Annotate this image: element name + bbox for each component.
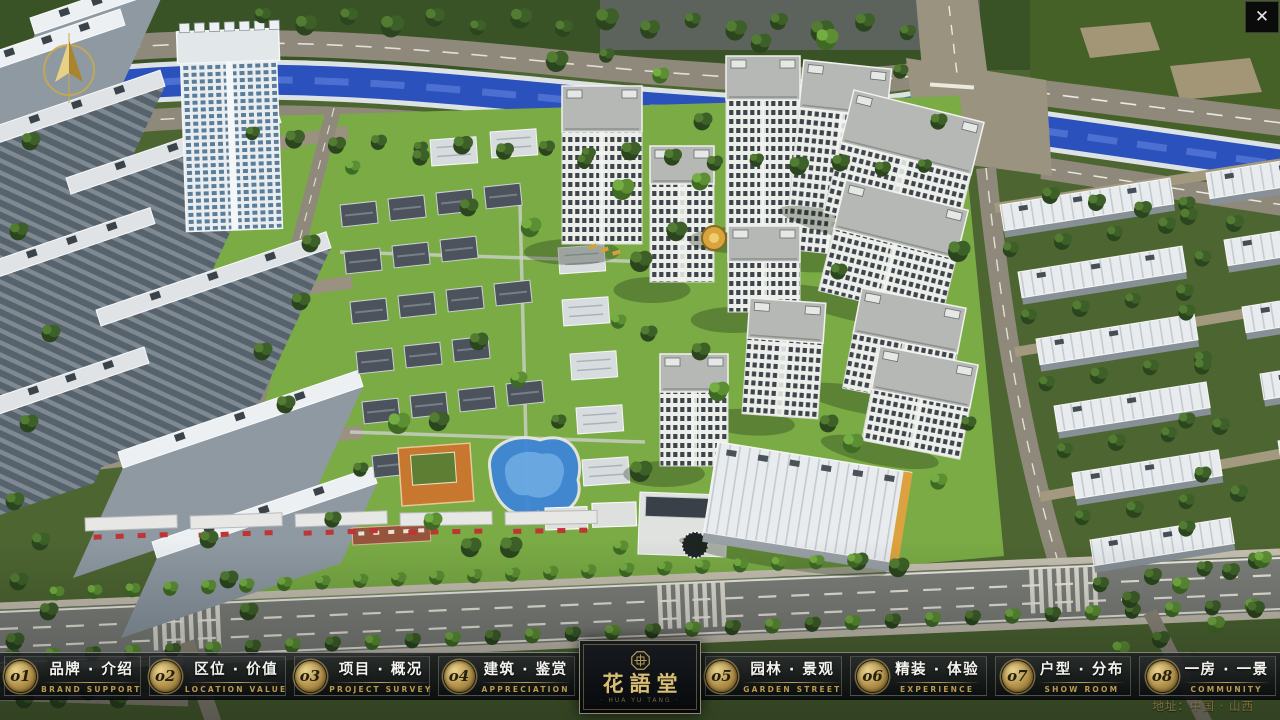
menu-item-interior-experience[interactable]: o6 精装 · 体验EXPERIENCE <box>850 656 987 696</box>
seal-emblem-icon <box>630 650 651 671</box>
presentation-stage: ✕ o1 品牌 · 介绍BRAND SUPPORT o2 区位 · 价值LOCA… <box>0 0 1280 720</box>
menu-number-badge: o7 <box>1002 661 1033 692</box>
menu-number-badge: o3 <box>295 661 326 692</box>
menu-label-en: LOCATION VALUE <box>185 685 287 694</box>
menu-label-en: APPRECIATION <box>482 685 570 694</box>
menu-label-en: EXPERIENCE <box>900 685 974 694</box>
compass-icon <box>38 30 100 110</box>
menu-item-brand-intro[interactable]: o1 品牌 · 介绍BRAND SUPPORT <box>4 656 141 696</box>
bottom-menu-bar: o1 品牌 · 介绍BRAND SUPPORT o2 区位 · 价值LOCATI… <box>0 652 1280 700</box>
menu-number-badge: o6 <box>857 661 888 692</box>
menu-divider <box>188 682 285 683</box>
menu-item-architecture[interactable]: o4 建筑 · 鉴赏APPRECIATION <box>438 656 575 696</box>
menu-label-cn: 项目 · 概况 <box>339 658 423 679</box>
close-button[interactable]: ✕ <box>1245 1 1279 33</box>
menu-item-floorplan[interactable]: o7 户型 · 分布SHOW ROOM <box>995 656 1132 696</box>
menu-number-badge: o4 <box>444 661 475 692</box>
menu-divider <box>895 682 979 683</box>
address-text: 地址：中国 · 山西 <box>1153 698 1254 714</box>
menu-number: o4 <box>449 669 469 684</box>
menu-label-cn: 精装 · 体验 <box>895 658 979 679</box>
menu-label-cn: 区位 · 价值 <box>194 658 278 679</box>
menu-item-project-overview[interactable]: o3 项目 · 概况PROJECT SURVEY <box>294 656 431 696</box>
menu-label-en: BRAND SUPPORT <box>41 685 141 694</box>
menu-divider <box>744 682 841 683</box>
menu-label-cn: 品牌 · 介绍 <box>49 658 133 679</box>
menu-label-en: SHOW ROOM <box>1045 685 1120 694</box>
logo-subtitle: · HUA YU TANG · <box>601 697 680 704</box>
menu-item-garden-landscape[interactable]: o5 园林 · 景观GARDEN STREET <box>705 656 842 696</box>
menu-label-cn: 园林 · 景观 <box>750 658 834 679</box>
menu-label-en: GARDEN STREET <box>743 685 841 694</box>
logo-plate[interactable]: 花語堂 · HUA YU TANG · <box>579 640 701 714</box>
menu-label-cn: 建筑 · 鉴赏 <box>484 658 568 679</box>
menu-number-badge: o8 <box>1147 661 1178 692</box>
menu-item-one-room-one-view[interactable]: o8 一房 · 一景COMMUNITY <box>1139 656 1276 696</box>
menu-number: o5 <box>711 669 731 684</box>
menu-number: o6 <box>862 669 882 684</box>
menu-number: o1 <box>10 669 30 684</box>
menu-number: o8 <box>1152 669 1172 684</box>
menu-divider <box>1185 682 1269 683</box>
menu-label-en: COMMUNITY <box>1190 685 1262 694</box>
menu-number-badge: o2 <box>150 661 181 692</box>
menu-divider <box>1040 682 1124 683</box>
menu-label-en: PROJECT SURVEY <box>329 685 432 694</box>
menu-number: o3 <box>300 669 320 684</box>
menu-divider <box>333 682 430 683</box>
menu-item-location-value[interactable]: o2 区位 · 价值LOCATION VALUE <box>149 656 286 696</box>
menu-label-cn: 一房 · 一景 <box>1185 658 1269 679</box>
aerial-render-map <box>0 0 1280 720</box>
menu-divider <box>43 682 140 683</box>
menu-number: o7 <box>1007 669 1027 684</box>
menu-divider <box>482 682 570 683</box>
menu-number-badge: o1 <box>5 661 36 692</box>
logo-title: 花語堂 <box>597 672 684 695</box>
menu-number-badge: o5 <box>706 661 737 692</box>
menu-label-cn: 户型 · 分布 <box>1040 658 1124 679</box>
menu-number: o2 <box>155 669 175 684</box>
